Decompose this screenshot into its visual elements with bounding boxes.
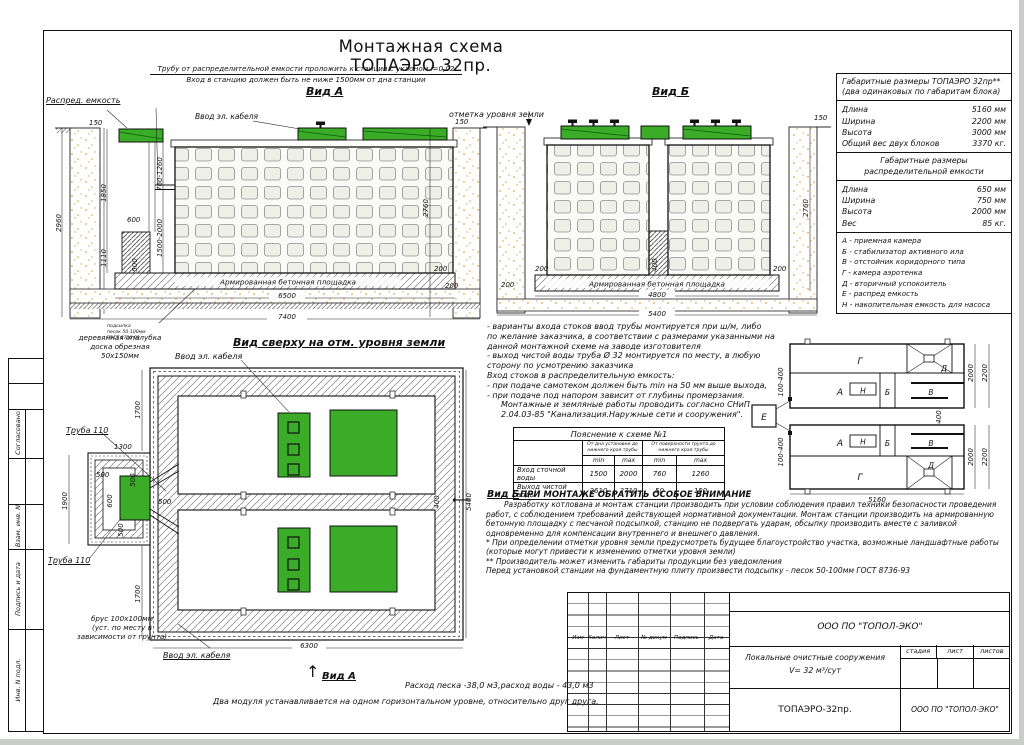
project-name: Локальные очистные сооружения: [734, 653, 896, 662]
dim-400-plan: 400: [433, 495, 441, 509]
view-a-label: Вид А: [306, 85, 343, 98]
compartment-v2: В: [928, 439, 933, 448]
product-name: ТОПАЭРО-32пр.: [730, 705, 900, 715]
dim-2000-a: 2000: [967, 364, 975, 382]
compartment-a2: А: [836, 439, 843, 449]
dim-2760-b: 2760: [802, 199, 810, 217]
dim-6300: 6300: [300, 642, 318, 650]
footer-sand-note: Расход песка -38,0 м3,расход воды - 43,0…: [405, 681, 594, 690]
view-a-drawing: Армированная бетонная площадка Ввод эл. …: [55, 108, 487, 342]
dim-760-1260: 760-1260: [156, 157, 164, 191]
explain-group-2: От поверхности грунта до нижнего края тр…: [643, 441, 725, 456]
stamp-signature: Подпись и дата: [14, 562, 22, 616]
dim-5400-b: 5400: [648, 310, 666, 318]
stamp-agreed: Согласовано: [14, 411, 22, 455]
beam-note: брус 100х100мм (уст. по месту в зависимо…: [52, 614, 192, 641]
green-block-1: [330, 410, 397, 476]
green-block-2: [330, 526, 397, 592]
compartment-d1: Д: [940, 364, 947, 373]
dim-200-a1: 200: [434, 265, 448, 273]
compartment-n1: Н: [860, 387, 866, 396]
explain-group-1: От дна установки до нижнего края трубы: [583, 441, 643, 456]
dim-400-b: 400: [651, 258, 659, 272]
dim-400-schem: 400: [935, 410, 943, 424]
stamp-vzam: Взам. инв. N: [14, 505, 22, 547]
view-b-arrow: ⟵: [452, 494, 471, 507]
distrib-tank-label: Распред. емкость: [46, 96, 120, 105]
stamp-inv: Инв. N подл.: [14, 659, 22, 702]
compartment-a1: А: [836, 388, 843, 398]
dim-5160: 5160: [868, 496, 886, 504]
dim-500d: 500: [158, 498, 172, 506]
attention-star2: ** Производитель может изменить габариты…: [486, 557, 1010, 566]
dim-1300: 1300: [114, 443, 132, 451]
dim-100-400-b: 100-400: [777, 437, 785, 467]
page-edge-bottom: [0, 739, 1024, 745]
attention-final: Перед установкой станции на фундаментную…: [486, 566, 1010, 575]
view-a-arrow: ↑: [306, 664, 319, 680]
stage-header: стадия лист листов: [900, 645, 1010, 659]
compartment-n2: Н: [860, 438, 866, 447]
dim-1500-2000: 1500-2000: [156, 218, 164, 257]
footer-level-note: Два модуля устанавливается на одном гори…: [213, 697, 599, 706]
legend-item: Г - камера аэротенка: [842, 268, 1006, 279]
dim-150-left: 150: [89, 119, 103, 127]
legend-item: В - отстойник коридорного типа: [842, 257, 1006, 268]
panel-title-2a: Габаритные размеры: [842, 156, 1006, 166]
ground-arrow: [526, 119, 532, 126]
slab-label-b: Армированная бетонная площадка: [588, 280, 725, 289]
dim-200-a2: 200: [445, 282, 459, 290]
green-panel-1: [278, 413, 310, 477]
tank-1-b: [547, 145, 649, 275]
dim-6500: 6500: [278, 292, 296, 300]
formwork-note: деревянная опалубка доска обрезная 50х15…: [60, 333, 180, 360]
compartment-d2: Д: [927, 461, 934, 470]
cable-label-a: Ввод эл. кабеля: [195, 112, 259, 121]
montage-notes: - варианты входа стоков ввод трубы монти…: [487, 322, 775, 420]
dim-150-right: 150: [455, 118, 469, 126]
title-block: Изм Колич Лист № докум Подпись Дата ООО …: [567, 592, 1010, 732]
middle-box-b: [641, 126, 669, 139]
attention-heading: ПРИ МОНТАЖЕ ОБРАТИТЬ ОСОБОЕ ВНИМАНИЕ: [520, 490, 751, 500]
dim-200-bl: 200: [535, 265, 549, 273]
dim-1850: 1850: [100, 184, 108, 202]
pipe-note-1: Трубу от распределительной емкости проло…: [150, 64, 462, 75]
explain-title: Пояснение к схеме №1: [514, 428, 725, 441]
project-volume: V= 32 м³/сут: [734, 666, 896, 675]
dim-500b: 500: [129, 473, 137, 487]
dim-600-plan: 600: [106, 494, 114, 508]
revision-header: Изм Колич Лист № докум Подпись Дата: [568, 635, 729, 641]
legend-item: Б - стабилизатор активного ила: [842, 247, 1006, 258]
dim-500a: 500: [96, 471, 110, 479]
view-b-drawing: Армированная бетонная площадка 150 2760 …: [483, 103, 831, 335]
dim-150-b: 150: [814, 114, 828, 122]
info-panel: Габаритные размеры ТОПАЭРО 32пр** (два о…: [836, 73, 1012, 314]
dim-200-bb: 200: [501, 281, 515, 289]
legend-item: Д - вторичный успокоитель: [842, 279, 1006, 290]
compartment-b1: Б: [885, 388, 890, 397]
sand-note-1: подсыпка: [107, 324, 131, 329]
dim-2200-b: 2200: [981, 448, 989, 466]
slab-label-a: Армированная бетонная площадка: [219, 278, 356, 287]
explain-row-inlet: Вход сточной воды 1500 2000 760 1260: [514, 466, 725, 483]
title-block-right: ООО ПО "ТОПОЛ-ЭКО" Локальные очистные со…: [729, 593, 1010, 731]
dim-2200-a: 2200: [981, 364, 989, 382]
dim-1110: 1110: [100, 249, 108, 267]
panel-title-2b: распределительной емкости: [842, 167, 1006, 177]
dim-200-br: 200: [773, 265, 787, 273]
station-dimensions: Длина5160 мм Ширина2200 мм Высота3000 мм…: [837, 101, 1011, 152]
dim-600: 600: [127, 216, 141, 224]
compartment-e: Е: [761, 413, 767, 423]
dim-1900: 1900: [61, 492, 69, 510]
panel-sub-1: (два одинаковых по габаритам блока): [842, 87, 1006, 97]
dim-500-a: 500: [131, 258, 139, 272]
company-name: ООО ПО "ТОПОЛ-ЭКО": [730, 622, 1010, 632]
company-name-2: ООО ПО "ТОПОЛ-ЭКО": [900, 705, 1010, 714]
schematic-drawing: Г Д А Н Б В А Н Б В Г Д Е 100-400: [745, 330, 1022, 504]
distrib-dimensions: Длина650 мм Ширина750 мм Высота2000 мм В…: [837, 181, 1011, 232]
view-a-ref: Вид А: [322, 671, 356, 682]
legend: А - приемная камера Б - стабилизатор акт…: [837, 233, 1011, 314]
dim-2000-b: 2000: [967, 448, 975, 466]
legend-item: Е - распред емкость: [842, 289, 1006, 300]
plan-cable-bottom-label: Ввод эл. кабеля: [163, 651, 230, 660]
page-edge-right: [1019, 0, 1024, 745]
pipe-notes: Трубу от распределительной емкости проло…: [150, 64, 462, 84]
attention-star1: * При определении отметки уровня земли п…: [486, 538, 1010, 557]
dim-2760-a: 2760: [422, 199, 430, 217]
dim-1700-top: 1700: [134, 401, 142, 419]
dim-4800: 4800: [648, 291, 666, 299]
dim-2960: 2960: [55, 214, 63, 232]
dim-500c: 500: [117, 523, 125, 537]
drawing-sheet: Монтажная схема ТОПАЭРО 32пр. Трубу от р…: [0, 0, 1024, 745]
compartment-b2: Б: [885, 439, 890, 448]
plan-heading: Вид сверху на отм. уровня земли: [233, 336, 445, 349]
tank-2-b: [668, 145, 770, 275]
compartment-v1: В: [928, 388, 933, 397]
attention-para: Разработку котлована и монтаж станции пр…: [486, 500, 1010, 538]
legend-item: Н - накопительная емкость для насоса: [842, 300, 1006, 311]
revision-table: Изм Колич Лист № докум Подпись Дата: [568, 593, 729, 731]
view-b-label: Вид Б: [652, 85, 689, 98]
dim-1700-bot: 1700: [134, 585, 142, 603]
stamp-column: Согласовано Взам. инв. N Подпись и дата …: [8, 358, 44, 732]
dim-100-400-a: 100-400: [777, 367, 785, 397]
panel-title-1: Габаритные размеры ТОПАЭРО 32пр**: [842, 77, 1006, 87]
legend-item: А - приемная камера: [842, 236, 1006, 247]
dim-7400: 7400: [278, 313, 296, 321]
station-tank-a: [175, 147, 453, 273]
pipe-note-2: Вход в станцию должен быть не ниже 1500м…: [150, 75, 462, 84]
